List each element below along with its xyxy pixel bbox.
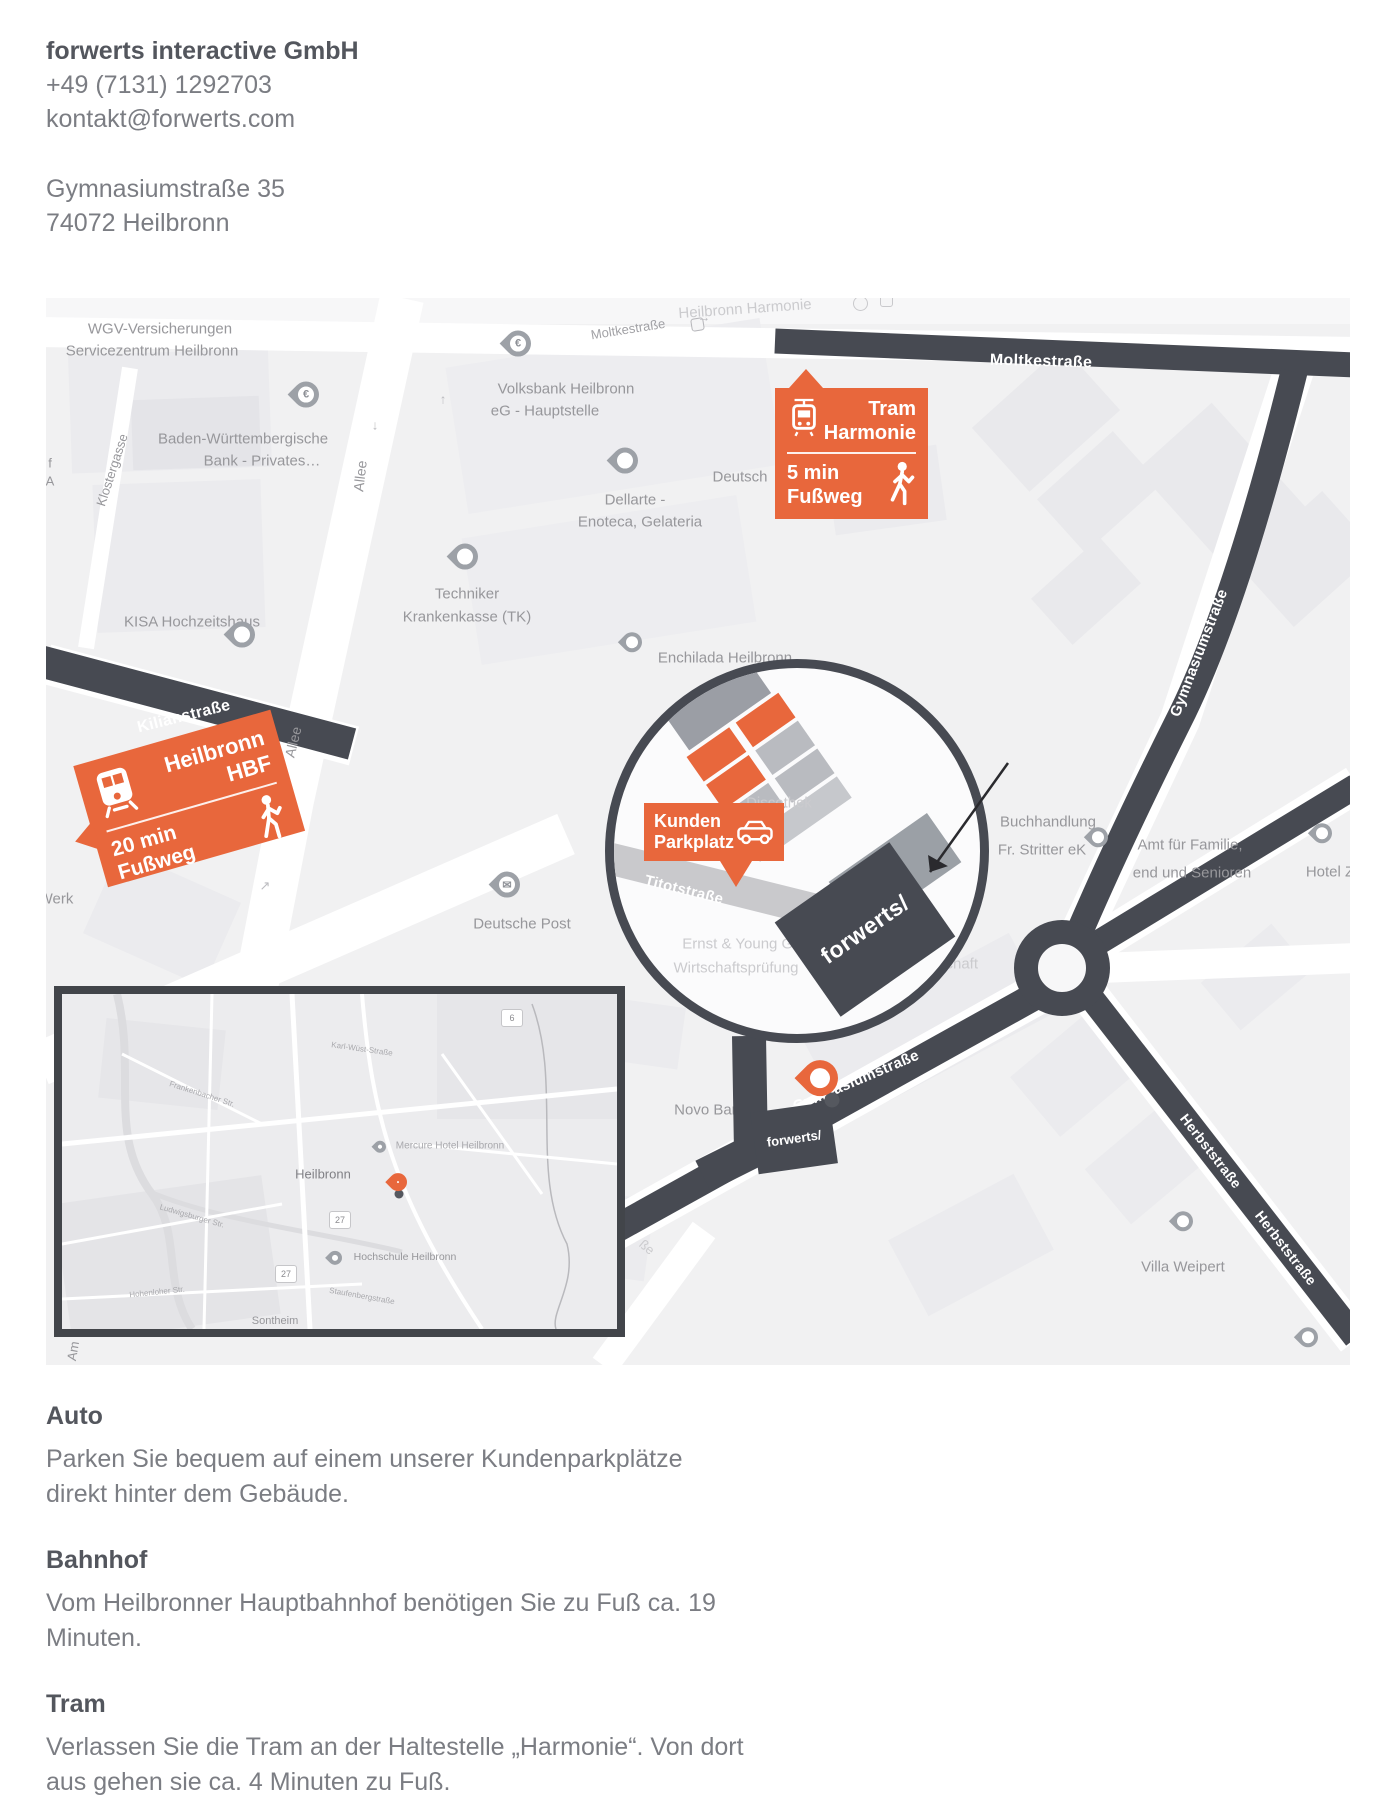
- section-auto-line1: Parken Sie bequem auf einem unserer Kund…: [46, 1442, 986, 1477]
- inset-hochschule-label: Hochschule Heilbronn: [354, 1251, 457, 1263]
- tram-callout-arrow: [789, 369, 823, 388]
- email-address[interactable]: kontakt@forwerts.com: [46, 102, 359, 136]
- section-auto-title: Auto: [46, 1398, 986, 1434]
- route-map: Heilbronn Harmonie WGV-Versicherungen Se…: [46, 298, 1350, 1365]
- inset-mercure-label: Mercure Hotel Heilbronn: [396, 1141, 504, 1152]
- route-badge-27: 27: [275, 1265, 297, 1283]
- walking-icon: [886, 461, 916, 507]
- section-bahnhof-title: Bahnhof: [46, 1542, 986, 1578]
- company-name: forwerts interactive GmbH: [46, 34, 359, 68]
- tram-icon: [787, 397, 821, 437]
- section-bahnhof-line1: Vom Heilbronner Hauptbahnhof benötigen S…: [46, 1586, 986, 1621]
- section-tram-line2: aus gehen sie ca. 4 Minuten zu Fuß.: [46, 1765, 986, 1800]
- anfahrt-page: forwerts interactive GmbH +49 (7131) 129…: [0, 0, 1400, 1809]
- inset-city-label: Heilbronn: [295, 1167, 351, 1182]
- contact-block: forwerts interactive GmbH +49 (7131) 129…: [46, 34, 359, 240]
- tram-stop-callout: Tram Harmonie 5 min Fußweg: [775, 369, 928, 519]
- address-street: Gymnasiumstraße 35: [46, 172, 359, 206]
- section-bahnhof: Bahnhof Vom Heilbronner Hauptbahnhof ben…: [46, 1542, 986, 1656]
- overview-inset-map: Frankenbacher Str. Karl-Wüst-Straße Ludw…: [54, 986, 625, 1337]
- train-icon: [90, 763, 142, 820]
- walking-icon: [248, 790, 292, 845]
- phone-number: +49 (7131) 1292703: [46, 68, 359, 102]
- directions-text: Auto Parken Sie bequem auf einem unserer…: [46, 1398, 986, 1809]
- tram-walk-line2: Fußweg: [787, 485, 863, 509]
- tram-walk-line1: 5 min: [787, 461, 863, 485]
- address-city: 74072 Heilbronn: [46, 206, 359, 240]
- section-tram-title: Tram: [46, 1686, 986, 1722]
- section-bahnhof-line2: Minuten.: [46, 1621, 986, 1656]
- inset-sontheim-label: Sontheim: [252, 1315, 298, 1327]
- section-auto-line2: direkt hinter dem Gebäude.: [46, 1477, 986, 1512]
- tram-callout-line2: Harmonie: [824, 421, 916, 445]
- tram-callout-line1: Tram: [824, 397, 916, 421]
- route-badge-6: 6: [501, 1009, 523, 1027]
- section-tram: Tram Verlassen Sie die Tram an der Halte…: [46, 1686, 986, 1800]
- section-auto: Auto Parken Sie bequem auf einem unserer…: [46, 1398, 986, 1512]
- section-tram-line1: Verlassen Sie die Tram an der Haltestell…: [46, 1730, 986, 1765]
- route-badge-27: 27: [329, 1211, 351, 1229]
